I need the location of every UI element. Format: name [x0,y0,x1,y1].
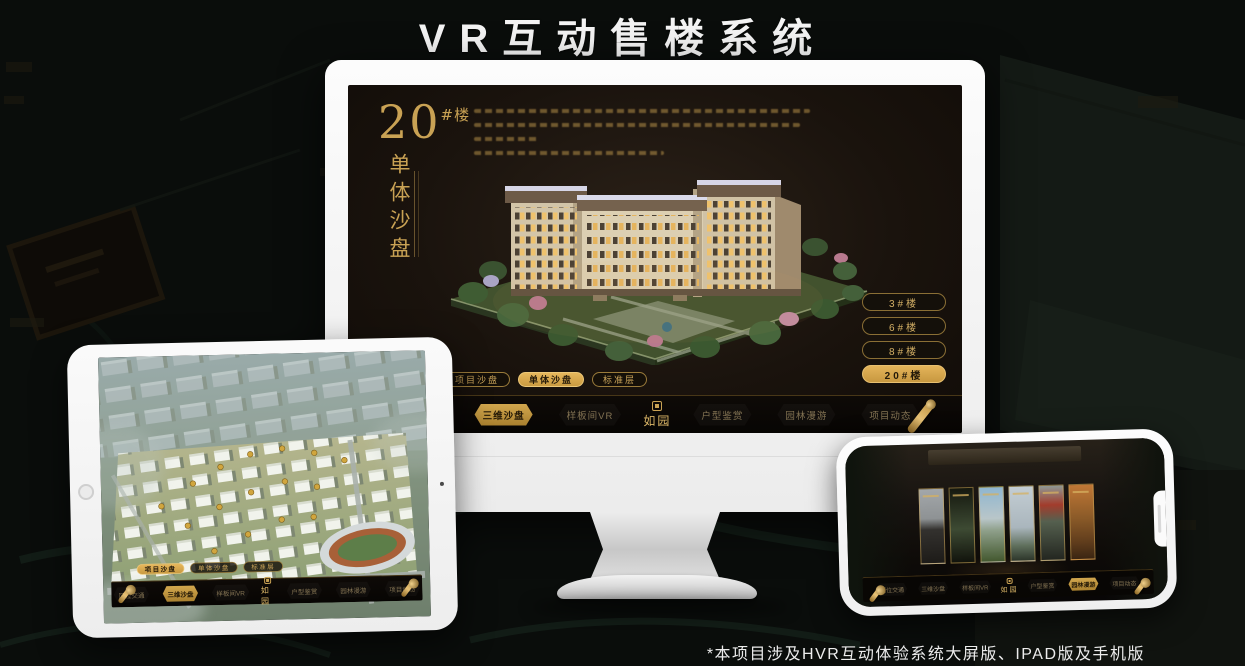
floor-button-6[interactable]: 6#楼 [862,317,946,335]
tab-project-sandbox[interactable]: 项目沙盘 [137,563,185,575]
phone-screen: 区位交通 三维沙盘 样板间VR 如园 户型鉴赏 园林漫游 项目动态 [845,438,1168,608]
seal-icon [652,401,662,411]
floor-button-3[interactable]: 3#楼 [862,293,946,311]
view-tab-group: 项目沙盘 单体沙盘 标准层 [444,372,647,387]
nav-item-3d-sandbox[interactable]: 三维沙盘 [916,581,950,595]
tab-single-building-sandbox[interactable]: 单体沙盘 [518,372,584,387]
nav-item-garden-roam[interactable]: 园林漫游 [333,581,373,598]
tab-standard-floor[interactable]: 标准层 [592,372,647,387]
monitor-stand-shadow [530,600,790,614]
brand-logo[interactable]: 如园 [643,401,671,429]
phone-notch [1153,490,1167,546]
tab-project-sandbox[interactable]: 项目沙盘 [444,372,510,387]
brand-logo-text: 如园 [261,584,276,606]
tab-standard-floor[interactable]: 标准层 [243,561,283,573]
scene-panel-courtyard[interactable] [948,487,975,564]
description-line [474,123,800,127]
brand-logo-text: 如园 [1000,584,1018,594]
nav-item-3d-sandbox[interactable]: 三维沙盘 [160,585,200,602]
scene-panel-garden[interactable] [1038,484,1065,561]
nav-item-unit-gallery[interactable]: 户型鉴赏 [689,404,755,426]
scene-panel-exterior-sky[interactable] [978,486,1005,563]
scene-panel-interior[interactable] [918,488,945,565]
interior-ceiling-beam [928,446,1081,465]
seal-icon [1006,577,1012,583]
nav-item-showroom-vr[interactable]: 样板间VR [555,404,626,426]
seal-icon [264,576,271,583]
nav-item-showroom-vr[interactable]: 样板间VR [957,580,994,594]
brand-logo[interactable]: 如园 [261,576,276,606]
nav-item-unit-gallery[interactable]: 户型鉴赏 [284,582,324,599]
ipad-screen: 项目沙盘 单体沙盘 标准层 区位交通 三维沙盘 样板间VR 如园 户型鉴赏 园林… [98,350,431,623]
phone-device: 区位交通 三维沙盘 样板间VR 如园 户型鉴赏 园林漫游 项目动态 [836,428,1178,616]
building-number: 20 [378,95,441,149]
brand-logo[interactable]: 如园 [1000,577,1018,594]
nav-item-3d-sandbox[interactable]: 三维沙盘 [471,404,537,426]
brand-logo-text: 如园 [643,412,671,429]
nav-item-unit-gallery[interactable]: 户型鉴赏 [1025,578,1059,592]
tab-single-building-sandbox[interactable]: 单体沙盘 [190,562,238,574]
footnote-text: *本项目涉及HVR互动体验系统大屏版、IPAD版及手机版 [707,640,1145,664]
nav-item-showroom-vr[interactable]: 样板间VR [209,584,252,601]
building-number-unit: #楼 [441,106,471,124]
vertical-caption-decoration [414,171,419,257]
floor-button-group: 3#楼 6#楼 8#楼 20#楼 [862,293,946,383]
scene-panel-warm-interior[interactable] [1068,484,1095,561]
scene-panel-gallery [918,484,1095,565]
speaker-icon [1158,504,1162,532]
floor-button-20[interactable]: 20#楼 [862,365,946,383]
scene-panel-building-facade[interactable] [1008,485,1035,562]
description-line [474,109,810,113]
nav-item-garden-roam[interactable]: 园林漫游 [773,404,839,426]
nav-item-garden-roam[interactable]: 园林漫游 [1066,577,1100,591]
ipad-device: 项目沙盘 单体沙盘 标准层 区位交通 三维沙盘 样板间VR 如园 户型鉴赏 园林… [67,337,459,639]
building-model-render[interactable] [443,151,873,365]
monitor-stand-base [557,575,757,599]
camera-icon [440,481,444,485]
page-title: VR互动售楼系统 [0,6,1245,64]
building-vertical-title: 单体沙盘 [384,153,414,265]
description-line [474,137,538,141]
floor-button-8[interactable]: 8#楼 [862,341,946,359]
monitor-stand-neck [590,512,720,580]
